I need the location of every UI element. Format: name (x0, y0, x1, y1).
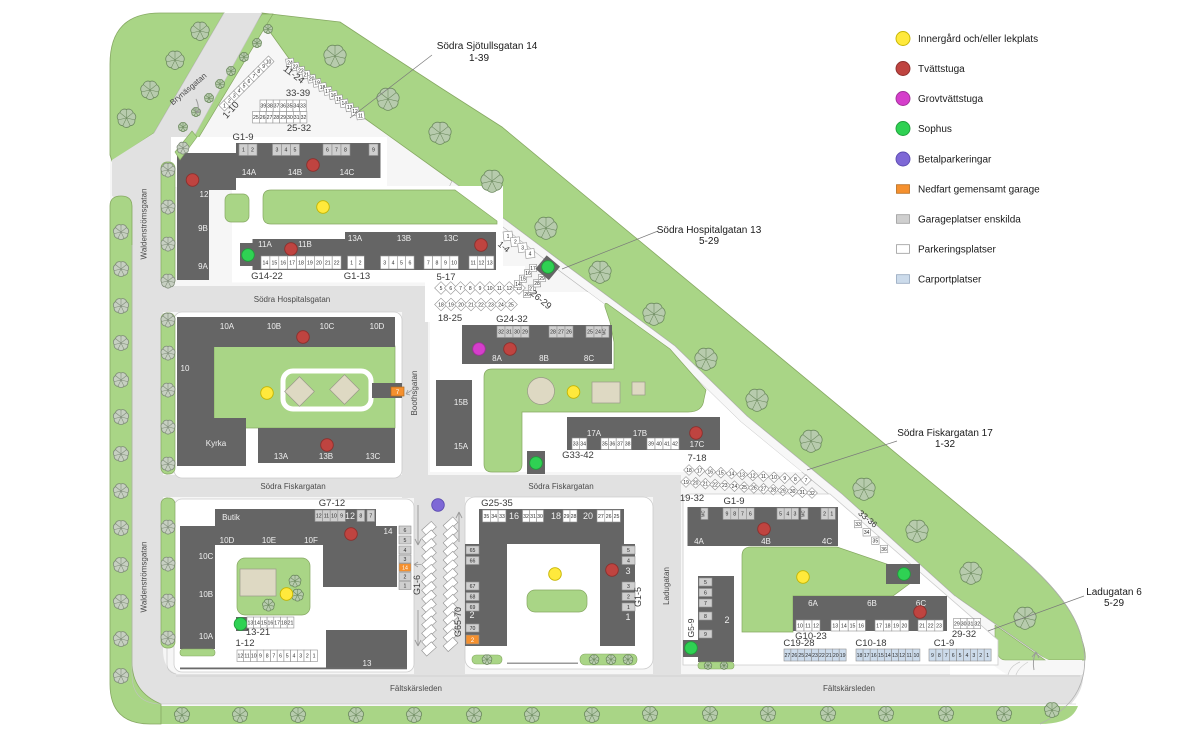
svg-text:7-18: 7-18 (687, 453, 706, 464)
svg-text:34: 34 (491, 514, 497, 520)
svg-text:6: 6 (279, 654, 282, 660)
svg-text:10: 10 (487, 286, 493, 292)
svg-text:12: 12 (200, 190, 209, 199)
svg-text:18: 18 (298, 260, 304, 266)
svg-text:Grovtvättstuga: Grovtvättstuga (918, 94, 983, 105)
svg-text:14: 14 (263, 260, 269, 266)
svg-text:10F: 10F (304, 536, 318, 545)
svg-text:2: 2 (306, 654, 309, 660)
svg-text:13: 13 (363, 659, 372, 668)
svg-text:21: 21 (288, 620, 294, 626)
svg-text:G1-5: G1-5 (633, 587, 643, 607)
svg-text:10C: 10C (199, 552, 214, 561)
svg-text:10B: 10B (267, 322, 281, 331)
svg-text:28: 28 (571, 514, 577, 520)
svg-text:10: 10 (451, 260, 457, 266)
svg-text:10D: 10D (220, 536, 235, 545)
svg-text:31: 31 (506, 330, 512, 336)
svg-text:17C: 17C (690, 440, 705, 449)
svg-text:27: 27 (761, 487, 767, 493)
svg-text:6: 6 (449, 286, 452, 292)
svg-text:26: 26 (606, 514, 612, 520)
svg-text:15: 15 (878, 653, 884, 659)
svg-text:30: 30 (790, 489, 796, 495)
svg-text:25: 25 (798, 653, 804, 659)
svg-text:27: 27 (785, 653, 791, 659)
svg-text:5: 5 (294, 148, 297, 154)
svg-text:3: 3 (521, 245, 524, 251)
svg-text:27: 27 (267, 115, 273, 121)
svg-text:Kyrka: Kyrka (206, 439, 227, 448)
svg-text:7: 7 (805, 478, 808, 484)
svg-text:25: 25 (741, 485, 747, 491)
svg-text:18: 18 (281, 620, 287, 626)
svg-text:4: 4 (238, 89, 241, 95)
svg-text:1: 1 (627, 605, 630, 611)
svg-text:12: 12 (813, 623, 819, 629)
svg-text:68: 68 (470, 594, 476, 600)
svg-text:26: 26 (791, 653, 797, 659)
svg-text:9: 9 (372, 148, 375, 154)
svg-text:24: 24 (732, 484, 738, 490)
svg-text:25: 25 (614, 514, 620, 520)
svg-text:5: 5 (400, 260, 403, 266)
svg-text:11: 11 (244, 654, 249, 660)
svg-text:15: 15 (718, 471, 724, 477)
svg-text:19-32: 19-32 (680, 493, 704, 504)
svg-text:29: 29 (280, 115, 286, 121)
svg-text:28: 28 (273, 115, 279, 121)
svg-text:18: 18 (551, 511, 561, 521)
svg-text:1-12: 1-12 (235, 638, 254, 649)
svg-text:14: 14 (729, 471, 735, 477)
svg-text:Nedfart gemensamt garage: Nedfart gemensamt garage (918, 185, 1040, 196)
svg-text:42: 42 (672, 442, 678, 448)
svg-text:15A: 15A (454, 442, 469, 451)
svg-text:31: 31 (294, 115, 300, 121)
svg-text:29: 29 (539, 276, 545, 282)
svg-text:11A: 11A (258, 240, 272, 249)
svg-text:Södra Hospitalgatan 13: Södra Hospitalgatan 13 (657, 225, 762, 236)
svg-text:14A: 14A (242, 168, 257, 177)
svg-text:9B: 9B (198, 224, 208, 233)
svg-text:16: 16 (871, 653, 877, 659)
svg-text:14B: 14B (288, 168, 302, 177)
svg-text:20: 20 (693, 481, 699, 487)
svg-text:MC: MC (602, 328, 607, 335)
svg-text:33: 33 (855, 522, 861, 528)
svg-text:8: 8 (938, 653, 941, 659)
svg-text:23: 23 (936, 623, 942, 629)
svg-text:4: 4 (285, 148, 288, 154)
svg-text:33: 33 (573, 442, 579, 448)
svg-text:15: 15 (850, 623, 856, 629)
svg-text:32: 32 (809, 491, 815, 497)
svg-text:11: 11 (324, 514, 329, 520)
svg-text:20: 20 (458, 302, 464, 308)
svg-text:5: 5 (779, 512, 782, 518)
svg-text:36: 36 (881, 547, 887, 553)
svg-text:3: 3 (383, 260, 386, 266)
svg-text:17: 17 (864, 653, 870, 659)
svg-text:G1-9: G1-9 (723, 496, 744, 507)
svg-text:6: 6 (952, 653, 955, 659)
svg-text:12: 12 (345, 511, 355, 521)
svg-text:3: 3 (299, 654, 302, 660)
svg-text:13A: 13A (348, 234, 363, 243)
svg-text:1: 1 (830, 512, 833, 518)
svg-text:9: 9 (931, 653, 934, 659)
svg-text:15: 15 (271, 260, 277, 266)
svg-text:39: 39 (260, 104, 266, 110)
svg-text:13: 13 (487, 260, 493, 266)
svg-text:G7-12: G7-12 (319, 498, 345, 509)
svg-text:12: 12 (506, 286, 512, 292)
svg-text:20: 20 (316, 260, 322, 266)
svg-text:21: 21 (703, 481, 709, 487)
svg-text:10: 10 (251, 654, 257, 660)
svg-text:17: 17 (697, 469, 703, 475)
svg-text:3: 3 (404, 557, 407, 563)
svg-text:5: 5 (243, 84, 246, 90)
svg-text:12: 12 (316, 514, 322, 520)
svg-text:MC: MC (801, 510, 806, 517)
svg-text:Södra Fiskargatan: Södra Fiskargatan (260, 482, 325, 491)
svg-text:18-25: 18-25 (438, 313, 462, 324)
svg-text:12: 12 (237, 654, 243, 660)
svg-text:Betalparkeringar: Betalparkeringar (918, 155, 992, 166)
svg-text:11: 11 (470, 260, 475, 266)
svg-text:1-39: 1-39 (469, 53, 489, 64)
svg-text:20: 20 (902, 623, 908, 629)
svg-text:4: 4 (786, 512, 789, 518)
svg-text:14: 14 (885, 653, 891, 659)
svg-text:22: 22 (819, 653, 825, 659)
svg-text:13A: 13A (274, 452, 289, 461)
svg-text:10E: 10E (262, 536, 276, 545)
svg-text:4: 4 (293, 654, 296, 660)
svg-text:14: 14 (841, 623, 847, 629)
svg-text:16: 16 (280, 260, 286, 266)
svg-text:28: 28 (770, 487, 776, 493)
svg-text:6: 6 (408, 260, 411, 266)
svg-text:33: 33 (300, 104, 306, 110)
svg-text:18: 18 (686, 468, 692, 474)
svg-text:Garageplatser enskilda: Garageplatser enskilda (918, 215, 1021, 226)
svg-text:35: 35 (287, 104, 293, 110)
svg-text:7: 7 (252, 74, 255, 80)
svg-text:28: 28 (534, 281, 540, 287)
svg-text:17: 17 (530, 266, 536, 272)
svg-text:12: 12 (479, 260, 485, 266)
svg-text:18: 18 (857, 653, 863, 659)
svg-text:13B: 13B (319, 452, 333, 461)
svg-text:17: 17 (274, 620, 280, 626)
svg-text:2: 2 (251, 148, 254, 154)
svg-text:8: 8 (704, 614, 707, 620)
svg-text:13: 13 (739, 472, 745, 478)
svg-text:10: 10 (181, 364, 190, 373)
svg-text:36: 36 (280, 104, 286, 110)
svg-text:Tvättstuga: Tvättstuga (918, 64, 965, 75)
svg-text:G14-22: G14-22 (251, 271, 283, 282)
svg-text:16: 16 (268, 620, 274, 626)
svg-text:29: 29 (954, 621, 960, 627)
svg-text:Innergård och/eller lekplats: Innergård och/eller lekplats (918, 33, 1038, 45)
svg-text:66: 66 (470, 558, 476, 564)
svg-text:31: 31 (800, 490, 806, 496)
svg-text:3: 3 (627, 584, 630, 590)
svg-text:16: 16 (525, 271, 531, 277)
svg-text:32: 32 (523, 514, 529, 520)
svg-text:20: 20 (833, 653, 839, 659)
svg-text:34: 34 (864, 530, 870, 536)
svg-text:31: 31 (530, 514, 536, 520)
svg-text:Waldenströmsgatan: Waldenströmsgatan (140, 542, 149, 613)
svg-text:Parkeringsplatser: Parkeringsplatser (918, 245, 996, 256)
svg-text:12: 12 (750, 473, 756, 479)
svg-text:C19-28: C19-28 (783, 638, 814, 649)
svg-text:19: 19 (893, 623, 899, 629)
svg-text:7: 7 (945, 653, 948, 659)
svg-text:4: 4 (392, 260, 395, 266)
svg-text:5: 5 (959, 653, 962, 659)
svg-text:3: 3 (233, 94, 236, 100)
svg-text:17A: 17A (587, 429, 602, 438)
svg-text:1: 1 (986, 653, 989, 659)
svg-text:4: 4 (529, 251, 532, 257)
svg-text:8: 8 (266, 654, 269, 660)
svg-text:5: 5 (440, 286, 443, 292)
svg-text:11: 11 (761, 474, 766, 480)
svg-text:17: 17 (876, 623, 882, 629)
svg-text:10A: 10A (220, 322, 235, 331)
svg-text:6: 6 (248, 79, 251, 85)
svg-text:6: 6 (404, 528, 407, 534)
svg-text:6B: 6B (867, 599, 877, 608)
svg-text:Södra Hospitalsgatan: Södra Hospitalsgatan (254, 295, 331, 304)
svg-text:Södra Fiskargatan 17: Södra Fiskargatan 17 (897, 428, 993, 439)
svg-text:16: 16 (858, 623, 864, 629)
svg-text:1: 1 (625, 612, 630, 622)
svg-text:33: 33 (499, 514, 505, 520)
svg-text:15B: 15B (454, 398, 468, 407)
svg-text:19: 19 (448, 302, 454, 308)
svg-text:Butik: Butik (222, 513, 241, 522)
svg-text:32: 32 (974, 621, 980, 627)
svg-text:G25-35: G25-35 (481, 498, 513, 509)
svg-text:10: 10 (797, 623, 803, 629)
svg-text:9A: 9A (198, 262, 208, 271)
svg-text:35: 35 (484, 514, 490, 520)
svg-text:G1-6: G1-6 (412, 575, 422, 595)
svg-text:1: 1 (404, 583, 407, 589)
svg-text:69: 69 (470, 605, 476, 611)
svg-text:25-32: 25-32 (287, 123, 311, 134)
svg-text:3: 3 (276, 148, 279, 154)
svg-text:Södra Fiskargatan: Södra Fiskargatan (528, 482, 593, 491)
svg-text:35: 35 (602, 442, 608, 448)
svg-text:4B: 4B (761, 537, 771, 546)
svg-text:18: 18 (438, 302, 444, 308)
svg-text:70: 70 (470, 626, 476, 632)
svg-text:13C: 13C (366, 452, 381, 461)
svg-text:7: 7 (369, 514, 372, 520)
svg-text:13C: 13C (444, 234, 459, 243)
svg-text:10C: 10C (320, 322, 335, 331)
svg-text:37: 37 (617, 442, 623, 448)
svg-text:3: 3 (625, 566, 630, 576)
svg-text:1: 1 (313, 654, 316, 660)
svg-text:12: 12 (899, 653, 905, 659)
svg-text:10B: 10B (199, 590, 213, 599)
svg-text:2: 2 (469, 610, 474, 620)
svg-text:Waldenströmsgatan: Waldenströmsgatan (140, 189, 149, 260)
svg-text:5: 5 (404, 538, 407, 544)
svg-text:8B: 8B (539, 354, 549, 363)
svg-text:11: 11 (358, 113, 363, 119)
svg-text:MC: MC (701, 510, 706, 517)
svg-text:10: 10 (913, 653, 919, 659)
svg-text:4: 4 (966, 653, 969, 659)
svg-text:32: 32 (301, 115, 307, 121)
svg-text:13: 13 (247, 620, 253, 626)
svg-text:4A: 4A (694, 537, 704, 546)
svg-text:23: 23 (488, 302, 494, 308)
svg-text:4C: 4C (822, 537, 832, 546)
svg-text:30: 30 (514, 330, 520, 336)
svg-text:1: 1 (507, 234, 510, 240)
svg-text:6: 6 (704, 590, 707, 596)
svg-text:9: 9 (704, 632, 707, 638)
svg-text:Södra Sjötullsgatan 14: Södra Sjötullsgatan 14 (437, 41, 538, 52)
svg-text:11: 11 (497, 286, 502, 292)
svg-text:6: 6 (326, 148, 329, 154)
svg-text:Fältskärsleden: Fältskärsleden (823, 684, 875, 693)
svg-text:21: 21 (826, 653, 832, 659)
svg-text:2: 2 (724, 615, 729, 625)
svg-text:14: 14 (254, 620, 260, 626)
svg-text:24: 24 (805, 653, 811, 659)
svg-text:10D: 10D (370, 322, 385, 331)
svg-text:37: 37 (274, 104, 280, 110)
svg-text:22: 22 (928, 623, 934, 629)
svg-text:13: 13 (832, 623, 838, 629)
svg-text:5-29: 5-29 (1104, 598, 1124, 609)
svg-text:24: 24 (595, 330, 601, 336)
svg-text:29: 29 (780, 488, 786, 494)
svg-text:23: 23 (722, 483, 728, 489)
svg-text:25: 25 (508, 302, 514, 308)
svg-text:2: 2 (823, 512, 826, 518)
svg-text:17: 17 (289, 260, 295, 266)
svg-text:21: 21 (468, 302, 474, 308)
svg-text:26: 26 (751, 486, 757, 492)
svg-text:10: 10 (771, 475, 777, 481)
svg-text:41: 41 (664, 442, 670, 448)
svg-text:19: 19 (840, 653, 846, 659)
svg-text:2: 2 (359, 260, 362, 266)
svg-text:22: 22 (712, 482, 718, 488)
svg-text:30: 30 (287, 115, 293, 121)
svg-text:22: 22 (334, 260, 340, 266)
svg-text:21: 21 (919, 623, 925, 629)
svg-text:G1-9: G1-9 (232, 132, 253, 143)
svg-text:34: 34 (293, 104, 299, 110)
svg-text:14C: 14C (340, 168, 355, 177)
svg-text:1: 1 (350, 260, 353, 266)
svg-text:33-39: 33-39 (286, 88, 310, 99)
svg-text:23: 23 (812, 653, 818, 659)
svg-text:G1-13: G1-13 (344, 271, 370, 282)
svg-text:4: 4 (627, 558, 630, 564)
svg-text:7: 7 (335, 148, 338, 154)
svg-text:Carportplatser: Carportplatser (918, 275, 982, 286)
svg-text:10A: 10A (199, 632, 214, 641)
svg-text:1-32: 1-32 (935, 439, 955, 450)
svg-text:38: 38 (625, 442, 631, 448)
svg-text:9: 9 (725, 512, 728, 518)
svg-text:Boothsgatan: Boothsgatan (410, 371, 419, 416)
svg-text:2: 2 (514, 240, 517, 246)
svg-text:28: 28 (550, 330, 556, 336)
svg-text:15: 15 (261, 620, 267, 626)
svg-text:G33-42: G33-42 (562, 450, 594, 461)
svg-text:29: 29 (522, 330, 528, 336)
svg-text:5-29: 5-29 (699, 236, 719, 247)
svg-text:40: 40 (656, 442, 662, 448)
svg-text:Fältskärsleden: Fältskärsleden (390, 684, 442, 693)
svg-text:G24-32: G24-32 (496, 314, 528, 325)
svg-text:2: 2 (627, 594, 630, 600)
svg-text:67: 67 (470, 584, 476, 590)
svg-text:16: 16 (509, 511, 519, 521)
svg-text:4: 4 (404, 548, 407, 554)
svg-text:9: 9 (340, 514, 343, 520)
svg-text:24: 24 (498, 302, 504, 308)
svg-text:17B: 17B (633, 429, 647, 438)
svg-text:7: 7 (427, 260, 430, 266)
svg-text:13-21: 13-21 (246, 627, 270, 638)
svg-text:29: 29 (564, 514, 570, 520)
svg-text:8: 8 (344, 148, 347, 154)
svg-text:G5-9: G5-9 (686, 618, 696, 637)
svg-text:C10-18: C10-18 (855, 638, 886, 649)
svg-text:19: 19 (683, 480, 689, 486)
svg-text:38: 38 (267, 104, 273, 110)
svg-text:9: 9 (479, 286, 482, 292)
svg-text:29-32: 29-32 (952, 629, 976, 640)
svg-text:8: 8 (435, 260, 438, 266)
svg-text:65: 65 (470, 548, 476, 554)
svg-text:8: 8 (469, 286, 472, 292)
svg-text:10: 10 (266, 59, 272, 65)
svg-text:2: 2 (404, 574, 407, 580)
svg-text:8: 8 (257, 69, 260, 75)
svg-text:Ladugatan: Ladugatan (662, 567, 671, 605)
svg-text:27: 27 (598, 514, 604, 520)
svg-text:25: 25 (253, 115, 259, 121)
svg-text:8C: 8C (584, 354, 594, 363)
svg-text:6: 6 (749, 512, 752, 518)
svg-text:1: 1 (242, 148, 245, 154)
svg-text:25: 25 (587, 330, 593, 336)
svg-text:7: 7 (741, 512, 744, 518)
svg-text:18: 18 (885, 623, 891, 629)
svg-text:19: 19 (307, 260, 313, 266)
svg-text:13: 13 (892, 653, 898, 659)
svg-text:3: 3 (972, 653, 975, 659)
